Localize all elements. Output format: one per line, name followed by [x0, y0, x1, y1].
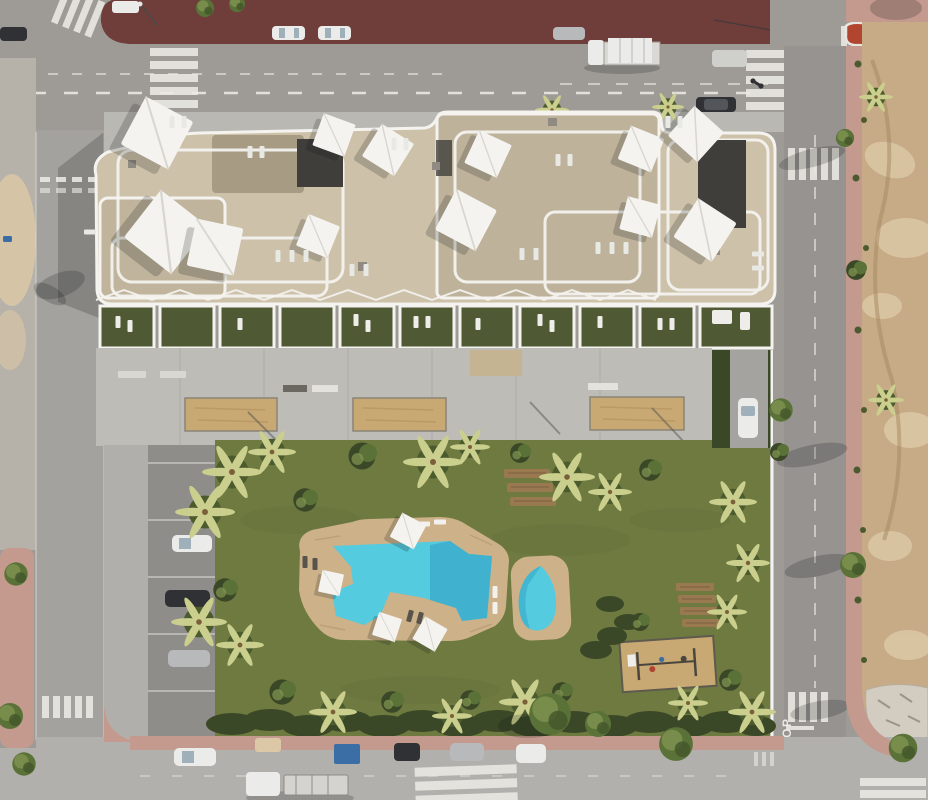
blue-object	[3, 236, 12, 242]
parked-car-white	[174, 748, 216, 766]
dark-van	[394, 743, 420, 761]
parking-strip	[104, 445, 215, 737]
parked-car-silver	[168, 650, 210, 667]
parked-car	[0, 27, 27, 41]
podium-plaza	[96, 348, 712, 446]
parked-car-white-1	[272, 26, 305, 40]
scene-canvas: STOP	[0, 0, 928, 800]
sand-courts	[185, 397, 684, 431]
parked-car-white-2	[318, 26, 351, 40]
truck-with-trailer	[246, 772, 354, 800]
driveway-car	[738, 398, 758, 438]
garden	[171, 428, 776, 737]
blue-container	[334, 744, 360, 764]
aerial-photo: STOP	[0, 0, 928, 800]
silver-car	[450, 743, 484, 761]
playground	[619, 636, 716, 692]
driveway-hedge	[712, 350, 730, 448]
parked-suv	[696, 97, 736, 112]
sidewalk-tree	[4, 562, 27, 585]
yield-marks	[754, 752, 774, 766]
parked-van-north	[112, 1, 139, 13]
flatbed-truck	[584, 38, 660, 74]
north-promenade	[101, 0, 800, 44]
white-car	[516, 744, 546, 763]
parked-car-silver	[553, 27, 585, 40]
entrance-paving	[470, 350, 522, 376]
van	[712, 50, 747, 67]
terrace-table	[712, 310, 732, 324]
street-cart	[255, 738, 281, 752]
roof-gravel-left	[212, 135, 304, 193]
tree-over-car	[659, 727, 693, 761]
west-sidewalk	[0, 58, 36, 550]
